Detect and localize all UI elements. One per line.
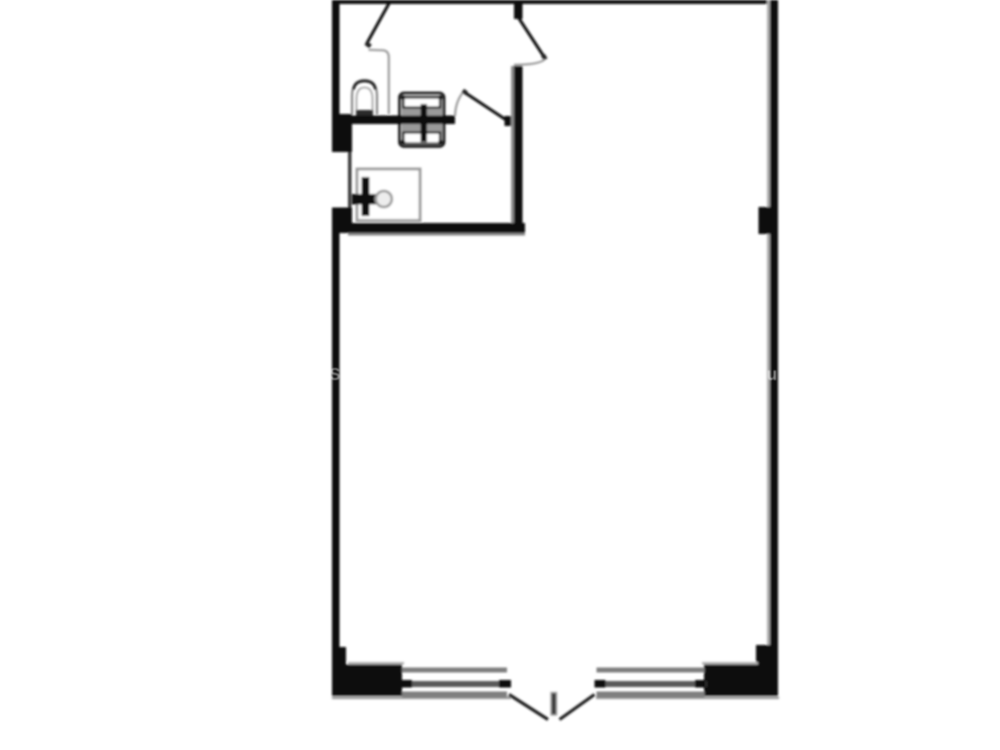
svg-text:S: S — [329, 364, 341, 384]
svg-text:u: u — [767, 364, 778, 384]
